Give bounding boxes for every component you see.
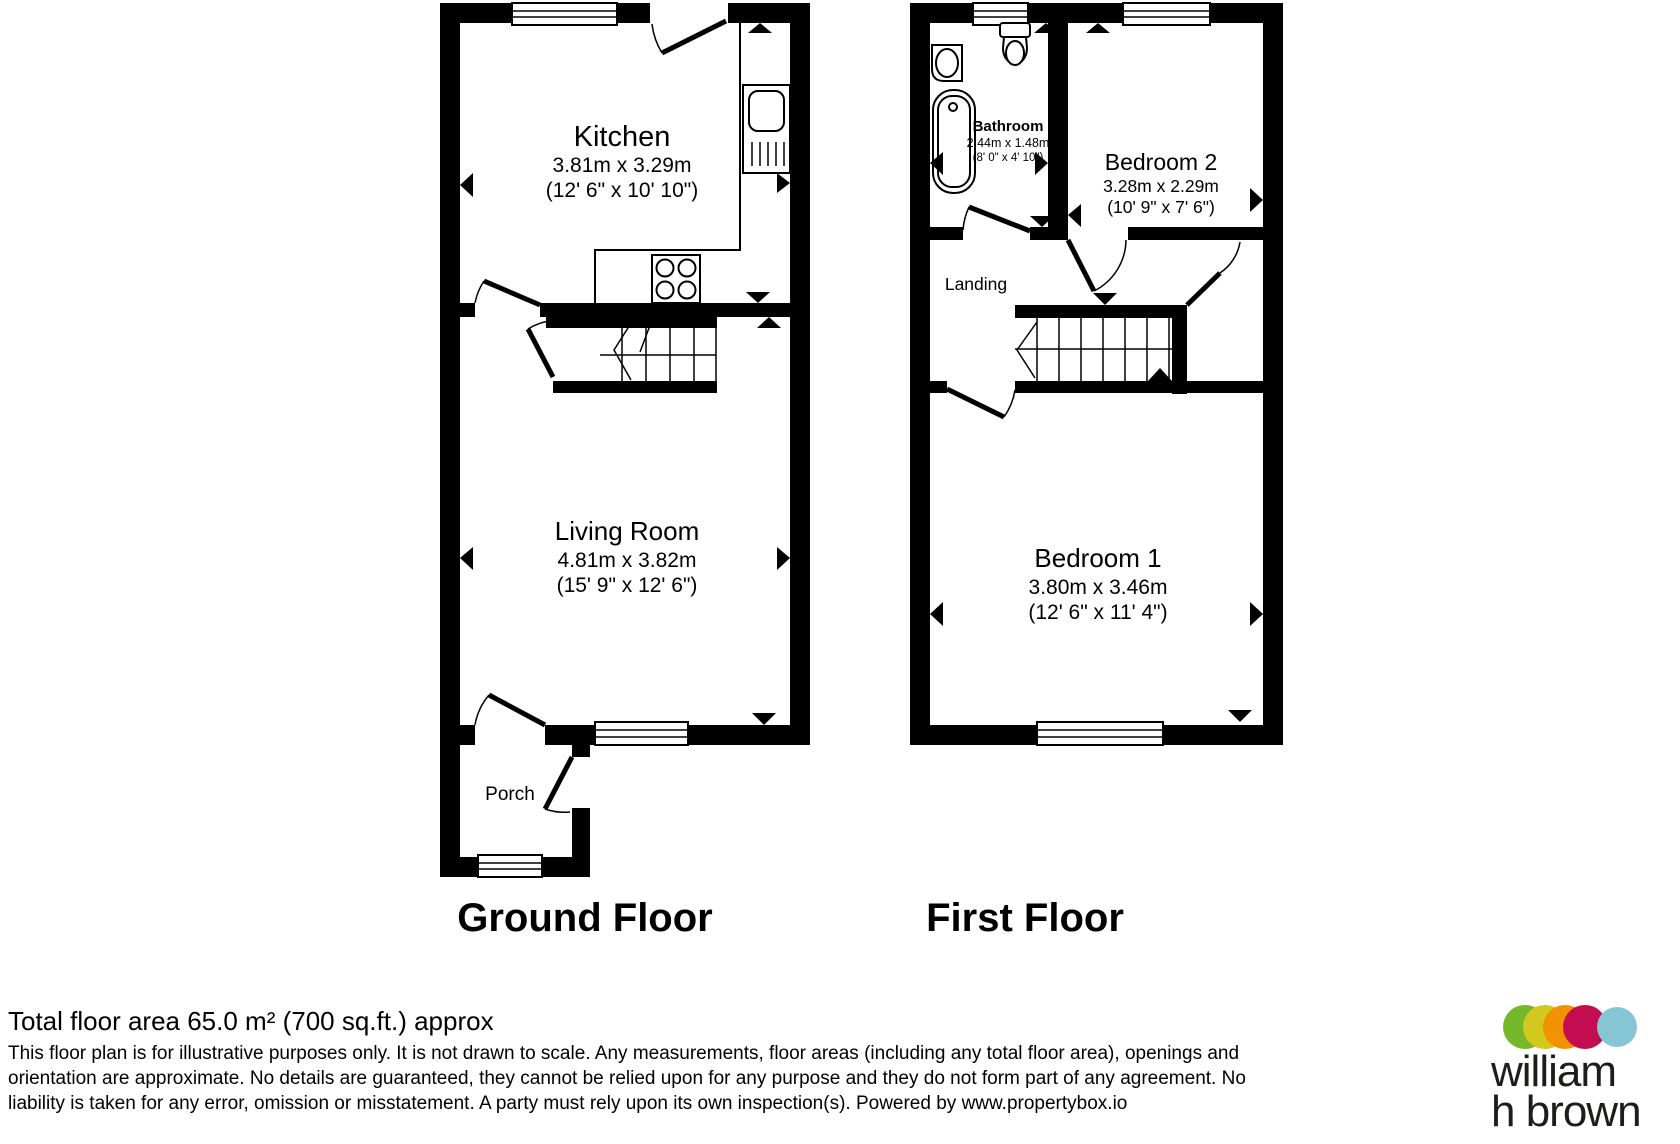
bedroom2-label: Bedroom 2 <box>1105 149 1218 175</box>
first-floor-plan: Bathroom 2.44m x 1.48m (8' 0" x 4' 10") … <box>910 3 1283 745</box>
basin-icon <box>932 45 962 81</box>
bedroom1-door <box>947 389 1015 417</box>
sink-icon <box>743 85 790 173</box>
living-room-window <box>595 722 688 745</box>
living-room-size-imperial: (15' 9" x 12' 6") <box>557 574 698 597</box>
porch-window <box>478 855 542 877</box>
ground-floor-title: Ground Floor <box>425 896 745 941</box>
kitchen-external-door <box>652 21 726 53</box>
bathroom-label: Bathroom <box>973 118 1044 135</box>
floorplan-page: Kitchen 3.81m x 3.29m (12' 6" x 10' 10")… <box>0 0 1680 1144</box>
disclaimer-line-1: This floor plan is for illustrative purp… <box>8 1043 1239 1065</box>
porch-label: Porch <box>485 784 535 805</box>
kitchen-label: Kitchen <box>574 121 671 153</box>
first-floor-title: First Floor <box>865 896 1185 941</box>
bedroom1-label: Bedroom 1 <box>1034 543 1161 573</box>
landing-label: Landing <box>945 274 1007 294</box>
disclaimer-line-2: orientation are approximate. No details … <box>8 1068 1246 1090</box>
bedroom1-window <box>1037 722 1163 745</box>
hob-icon <box>652 255 700 303</box>
ground-floor-plan: Kitchen 3.81m x 3.29m (12' 6" x 10' 10")… <box>440 3 810 877</box>
bathroom-window <box>973 3 1028 25</box>
living-room-label: Living Room <box>555 516 700 546</box>
ground-floor-stairs <box>600 320 716 381</box>
logo-text-line1: william <box>1491 1052 1616 1092</box>
living-porch-door <box>475 695 545 725</box>
kitchen-living-door <box>475 281 540 305</box>
bedroom2-size-metric: 3.28m x 2.29m <box>1103 176 1219 196</box>
bedroom2-size-imperial: (10' 9" x 7' 6") <box>1107 197 1215 217</box>
stairs-door <box>528 321 553 377</box>
living-room-size-metric: 4.81m x 3.82m <box>558 549 697 572</box>
bathroom-size-metric: 2.44m x 1.48m <box>967 136 1050 150</box>
disclaimer-line-3: liability is taken for any error, omissi… <box>8 1093 1127 1115</box>
kitchen-window <box>512 3 617 25</box>
bedroom1-size-metric: 3.80m x 3.46m <box>1029 576 1168 599</box>
kitchen-size-imperial: (12' 6" x 10' 10") <box>546 179 699 202</box>
logo-dot-blue <box>1597 1007 1637 1047</box>
logo-text-line2: h brown <box>1491 1092 1641 1132</box>
bathroom-door <box>963 207 1030 231</box>
total-floor-area: Total floor area 65.0 m² (700 sq.ft.) ap… <box>8 1006 494 1037</box>
porch-front-door <box>545 757 572 812</box>
bedroom1-size-imperial: (12' 6" x 11' 4") <box>1028 601 1167 624</box>
kitchen-size-metric: 3.81m x 3.29m <box>553 154 692 177</box>
toilet-icon <box>1000 23 1030 65</box>
bedroom2-door <box>1068 240 1126 291</box>
bedroom2-window <box>1123 3 1210 25</box>
bathroom-size-imperial: (8' 0" x 4' 10") <box>973 152 1044 164</box>
first-floor-stairs <box>1015 318 1172 381</box>
stairs-top-door <box>1187 242 1240 305</box>
floorplan-drawing: Kitchen 3.81m x 3.29m (12' 6" x 10' 10")… <box>0 0 1680 960</box>
